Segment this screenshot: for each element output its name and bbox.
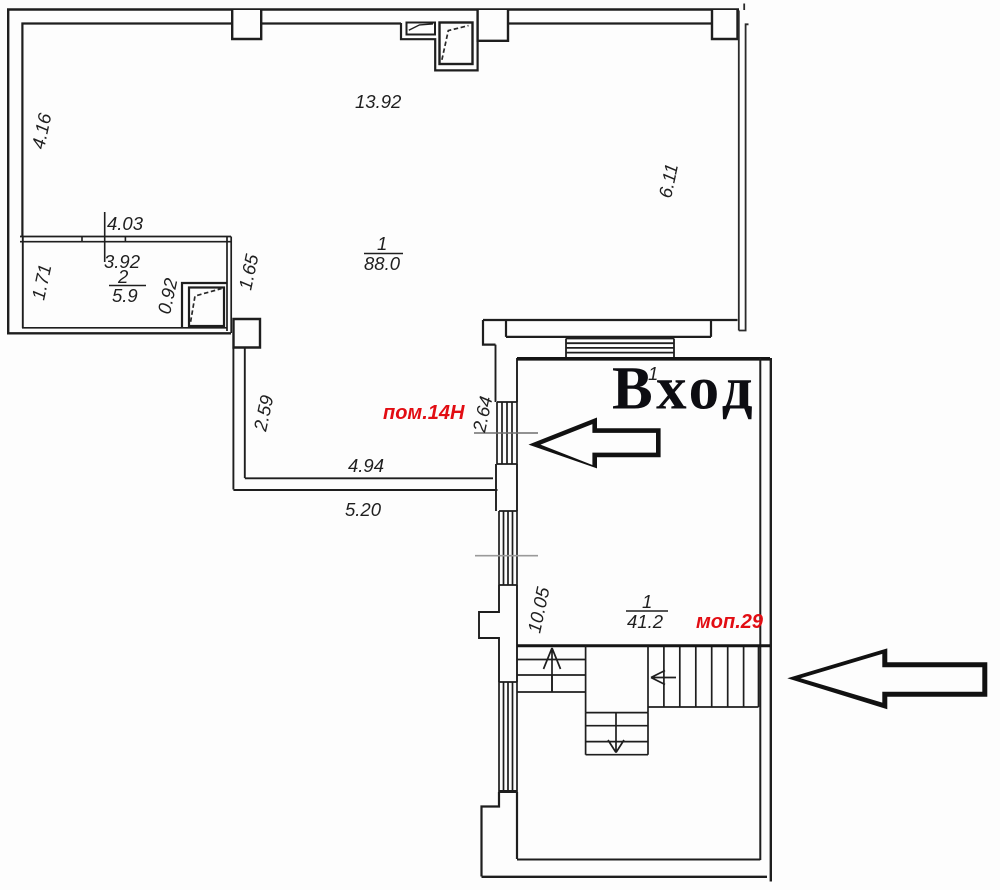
svg-text:41.2: 41.2 (627, 611, 664, 632)
svg-text:4.94: 4.94 (348, 455, 384, 476)
svg-text:5.9: 5.9 (112, 285, 138, 306)
svg-text:моп.29: моп.29 (696, 611, 764, 633)
svg-text:Вход: Вход (612, 356, 757, 423)
svg-text:5.20: 5.20 (345, 499, 382, 520)
svg-text:2: 2 (117, 266, 129, 287)
svg-text:1: 1 (642, 591, 652, 612)
svg-text:пом.14Н: пом.14Н (383, 402, 465, 424)
svg-text:4.03: 4.03 (107, 213, 144, 234)
svg-text:1: 1 (648, 363, 658, 384)
svg-text:1: 1 (377, 233, 387, 254)
svg-text:88.0: 88.0 (364, 253, 401, 274)
svg-text:13.92: 13.92 (355, 91, 402, 112)
